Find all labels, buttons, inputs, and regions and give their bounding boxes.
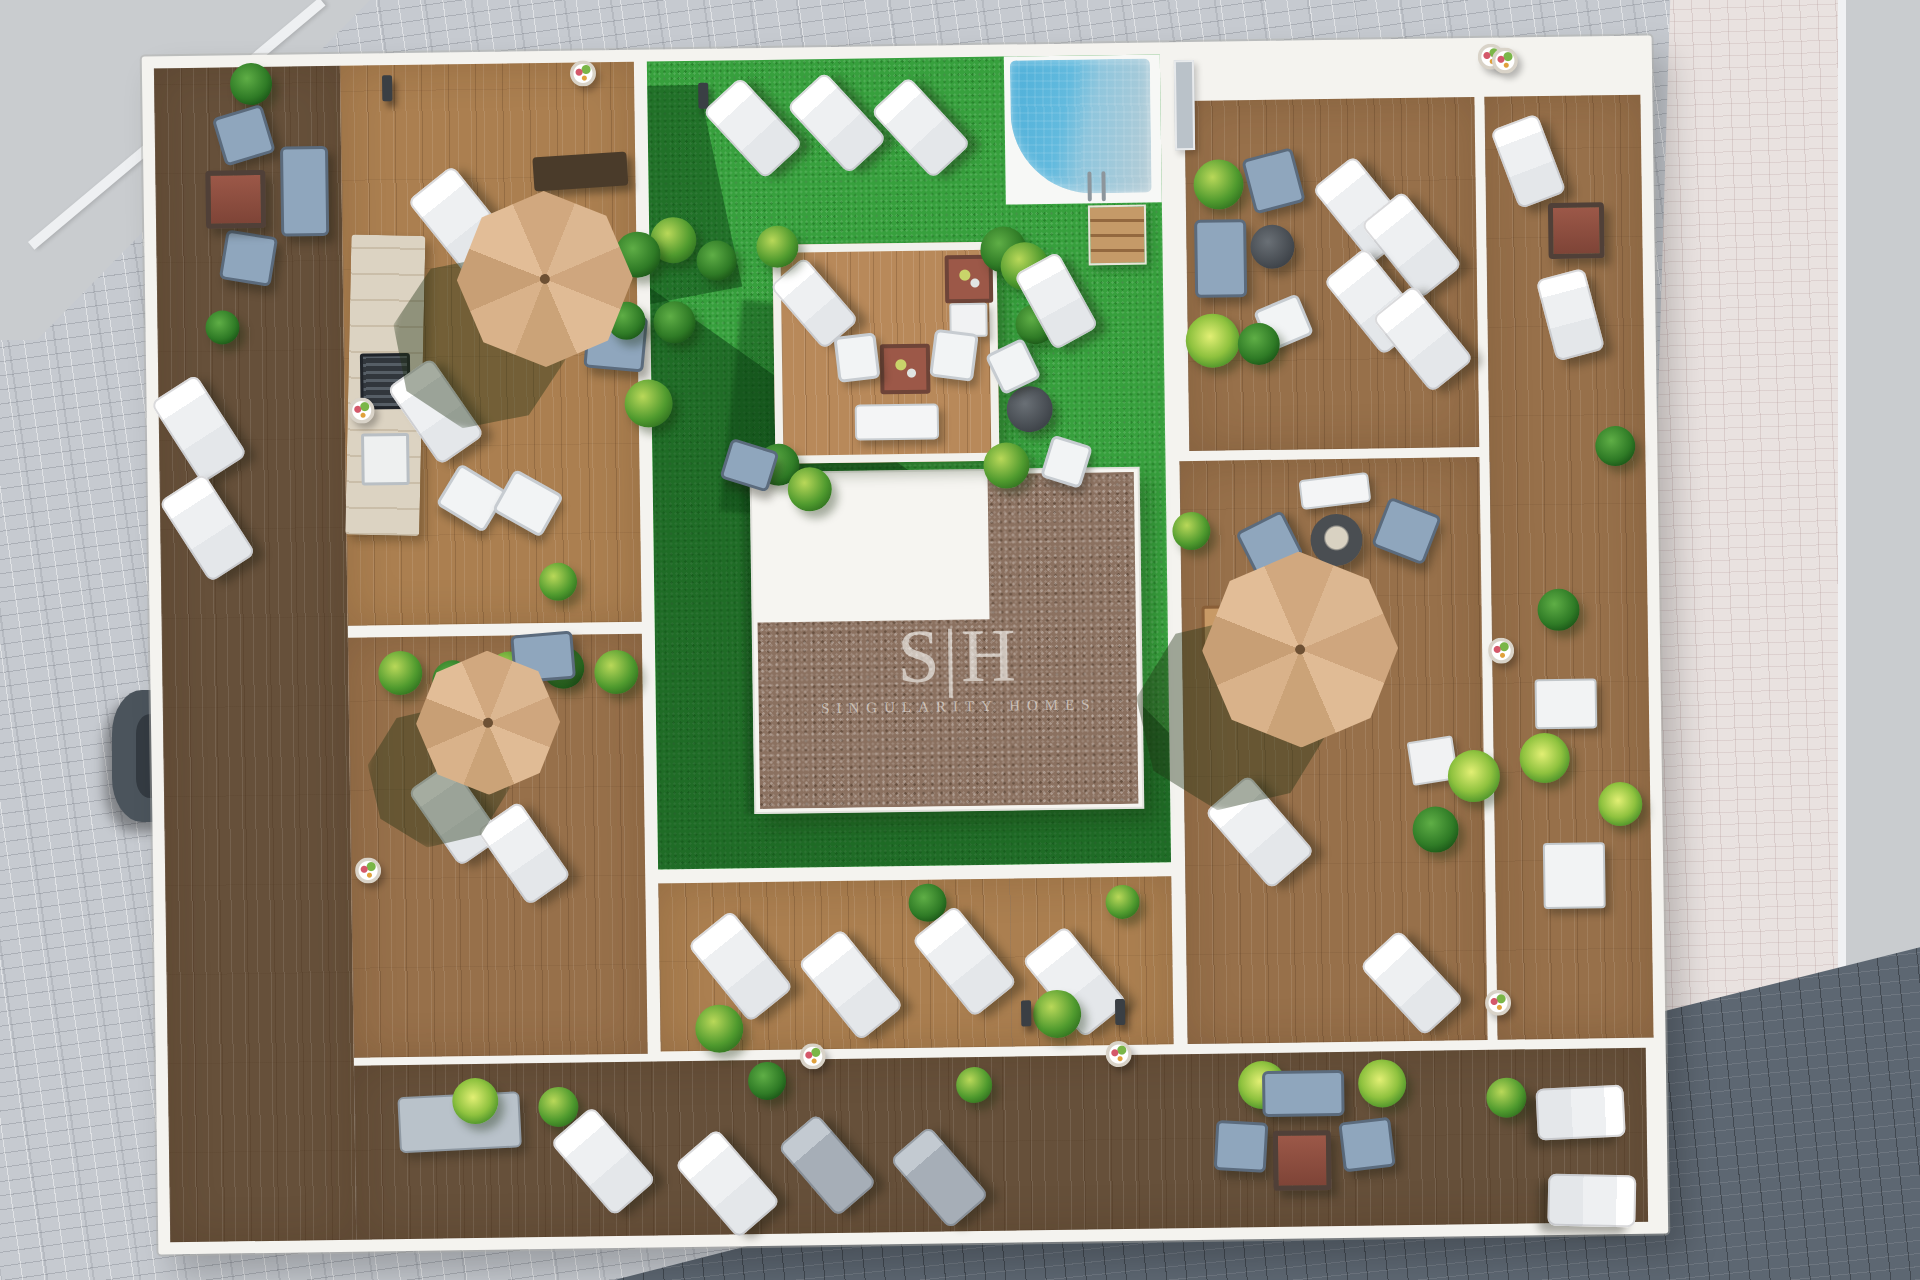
outdoor-shower-panel xyxy=(1174,60,1195,150)
armchair xyxy=(1214,1120,1269,1173)
pool-ladder-rail xyxy=(1101,171,1105,201)
sun-lounger xyxy=(1535,1084,1625,1140)
watermark: S|H SINGULARITY HOMES xyxy=(808,615,1109,717)
sofa xyxy=(280,146,329,237)
terrace-bottom-band xyxy=(354,1048,1648,1240)
sink xyxy=(361,433,410,486)
fire-table xyxy=(205,170,266,229)
flower-pot xyxy=(1492,47,1518,73)
sofa xyxy=(1194,219,1247,298)
armchair xyxy=(219,229,278,287)
low-table xyxy=(880,344,931,395)
fire-table xyxy=(1548,202,1605,259)
bollard-light xyxy=(698,83,708,109)
bollard-light xyxy=(382,75,392,101)
aerial-render-scene: S|H SINGULARITY HOMES xyxy=(0,0,1920,1280)
sun-lounger xyxy=(1547,1174,1636,1228)
curb-line-right xyxy=(1838,0,1846,1010)
rooftop-building: S|H SINGULARITY HOMES xyxy=(142,36,1669,1255)
palm-plant xyxy=(1448,750,1501,803)
pool-ladder-rail xyxy=(1087,171,1091,201)
storage-box xyxy=(1543,842,1606,909)
bollard-light xyxy=(1021,1000,1031,1026)
pool-steps xyxy=(1088,205,1147,266)
storage-box xyxy=(1535,678,1598,729)
fire-table xyxy=(1273,1130,1332,1191)
bench xyxy=(855,404,939,441)
pavement-right xyxy=(1638,0,1868,1060)
watermark-logo: S|H xyxy=(808,615,1109,695)
wood-bench xyxy=(532,151,628,191)
bollard-light xyxy=(1115,999,1125,1025)
sofa xyxy=(1262,1070,1345,1117)
chair xyxy=(833,332,880,383)
armchair xyxy=(1338,1117,1396,1173)
chair xyxy=(929,329,979,382)
